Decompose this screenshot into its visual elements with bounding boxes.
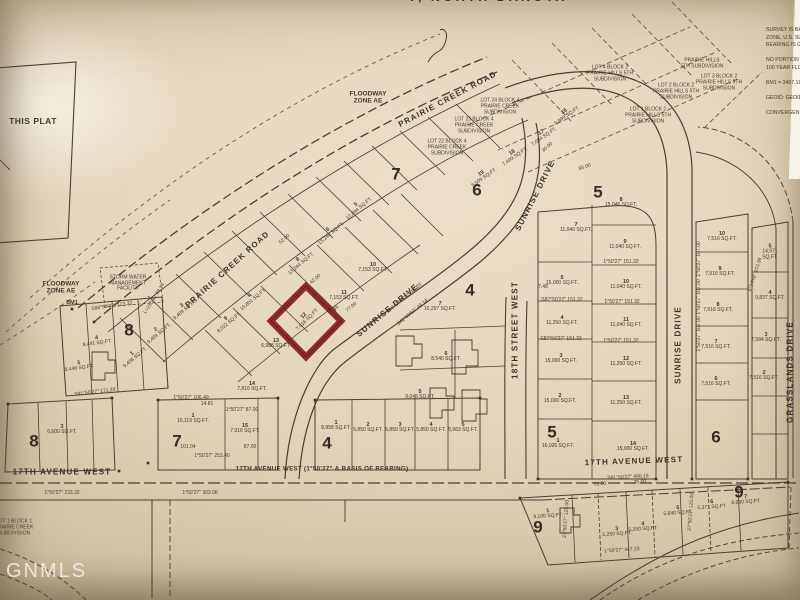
dimension-label: S87°50'27" 151.32 <box>540 337 581 343</box>
street-label: 18TH STREET WEST <box>512 281 521 379</box>
lot-label: 1211,250 SQ.FT. <box>610 356 642 368</box>
block-number: 4 <box>322 433 331 452</box>
lot-label: 1011,040 SQ.FT. <box>610 279 642 291</box>
lot-label: 55,963 SQ.FT. <box>448 422 477 434</box>
lot-label: 315,000 SQ.FT. <box>545 353 577 365</box>
dimension-label: 1°50'27" 233.32 <box>44 491 79 497</box>
adjacent-plat-label: LOT 22 BLOCK 4 PRAIRIE CREEK SUBDIVISION <box>427 139 466 156</box>
lot-label: 157,916 SQ.FT. <box>230 423 259 435</box>
dimension-label: 1°50'27" 87.00 <box>226 408 259 414</box>
lot-label: 35,850 SQ.FT. <box>385 422 414 434</box>
adjacent-plat-label: LOT 23 BLOCK 4 PRAIRIE CREEK SUBDIVISION <box>454 117 493 134</box>
lot-label: 25,850 SQ.FT. <box>353 422 382 434</box>
lot-label: 815,046 SQ.FT. <box>605 197 637 209</box>
adjacent-plat-label: PRAIRIE HILLS 5TH SUBDIVISION <box>680 58 723 70</box>
block-number: 8 <box>124 320 133 339</box>
dimension-label: 1°50'27" 303.06 <box>182 491 217 497</box>
lot-label: 1311,250 SQ.FT. <box>610 395 642 407</box>
this-plat-label: THIS PLAT <box>9 117 57 127</box>
lot-label: 37,584 SQ.FT. <box>751 332 780 344</box>
lot-label: 87,516 SQ.FT. <box>703 302 732 314</box>
dimension-label: 1°50'27" 253.40 <box>194 454 229 460</box>
lot-label: 107,516 SQ.FT. <box>707 231 736 243</box>
dimension-label: 1°50'27" 107.00 <box>697 316 703 351</box>
lot-label: 49,837 SQ.FT. <box>755 290 784 302</box>
dimension-label: 1°50'27" 151.32 <box>603 339 638 345</box>
road-17th-avenue <box>0 483 797 500</box>
lot-label: 1111,040 SQ.FT. <box>610 317 642 329</box>
lot-label: 67,516 SQ.FT. <box>701 376 730 388</box>
lot-label: 77,516 SQ.FT. <box>701 339 730 351</box>
zone-label: FLOODWAY ZONE AE <box>350 91 387 106</box>
lot-label: 711,040 SQ.FT. <box>560 222 592 234</box>
dimension-label: 14.81 <box>201 402 214 408</box>
vicinity-box <box>0 62 76 243</box>
dimension-label: 1°50'27" 151.32 <box>604 300 639 306</box>
dimension-label: 87.00 <box>244 445 257 451</box>
lot-label: 45,250 SQ.FT. <box>628 520 658 534</box>
plat-photo: Y, NORTH DAKOTA SURVEY IS BASE ZONE, U.S… <box>0 0 800 600</box>
plat-title-partial: Y, NORTH DAKOTA <box>408 0 567 4</box>
dimension-label: 75.00 <box>634 480 647 486</box>
block-number: 7 <box>391 164 400 183</box>
lot-label: 97,516 SQ.FT. <box>705 266 734 278</box>
dimension-label: 101.04 <box>180 445 195 451</box>
zone-label: FLOODWAY ZONE AE <box>43 281 80 296</box>
lot-label: 107,153 SQ.FT. <box>358 262 387 274</box>
street-label: 17TH AVENUE WEST (1°50'27" & BASIS OF BE… <box>236 467 409 474</box>
adjacent-plat-label: LOT 2 BLOCK 2 PRAIRIE HILLS 5TH SUBDIVIS… <box>653 83 699 100</box>
adjacent-plat-label: LOT 3 BLOCK 2 PRAIRIE HILLS 5TH SUBDIVIS… <box>696 74 742 91</box>
lot-label: 36,600 SQ.FT. <box>47 424 76 436</box>
dimension-label: 72.00 <box>594 482 607 488</box>
lot-label: 59,048 SQ.FT. <box>405 389 434 401</box>
block-outlines <box>5 205 788 598</box>
block-number: 4 <box>465 280 474 299</box>
footprint-shapes <box>92 336 580 533</box>
adjacent-plat-label: LOT 1 BLOCK 1 PRAIRIE CREEK SUBDIVISION <box>0 519 33 536</box>
survey-notes: SURVEY IS BASE ZONE, U.S. SUR BEARING IS… <box>766 27 800 117</box>
lot-label: 76,830 SQ.FT. <box>731 493 761 507</box>
lot-label: 1415,900 SQ.FT. <box>617 441 649 453</box>
lot-label: 215,000 SQ.FT. <box>544 393 576 405</box>
annotation-label: STORM WATER MANAGEMENT FACILITY <box>110 276 147 293</box>
lot-label: 515,000 SQ.FT. <box>546 275 578 287</box>
adjacent-plat-label: LOT 24 BLOCK 4 PRAIRIE CREEK SUBDIVISION <box>480 98 519 115</box>
dimension-label: S87°50'27" 151.32 <box>541 298 582 304</box>
street-label: 17TH AVENUE WEST <box>13 469 112 478</box>
lot-label: 911,040 SQ.FT. <box>609 239 641 251</box>
lot-label: 68,540 SQ.FT. <box>431 351 460 363</box>
lot-label: 411,250 SQ.FT. <box>546 315 578 327</box>
lot-label: 116,119 SQ.FT. <box>177 413 209 425</box>
dimension-label: 1°50'27" 107.00 <box>697 279 703 314</box>
dimension-label: 7.48 <box>538 285 548 291</box>
dimension-label: 1°50'27" 107.00 <box>697 241 703 276</box>
street-label: SUNRISE DRIVE <box>675 306 684 384</box>
block-number: 6 <box>711 427 720 446</box>
lot-label: 27,516 SQ.FT. <box>749 370 778 382</box>
benchmark-label: BM1 <box>66 300 78 306</box>
block-number: 5 <box>593 182 602 201</box>
gnmls-watermark: GNMLS <box>6 560 87 583</box>
lot-label: 65,371 SQ.FT. <box>697 498 727 512</box>
floodway-lines <box>0 34 440 345</box>
block-number: 8 <box>29 431 38 450</box>
street-label: GRASSLANDS DRIVE <box>787 321 796 423</box>
lot-label: 45,850 SQ.FT. <box>416 422 445 434</box>
lot-label: 136,988 SQ.FT. <box>261 338 290 350</box>
lot-label: 19,100 SQ.FT. <box>533 507 563 521</box>
lot-label: 116,026 SQ.FT. <box>542 438 574 450</box>
adjacent-plat-label: LOT 1 BLOCK 2 PRAIRIE HILLS 5TH SUBDIVIS… <box>625 107 671 124</box>
lot-label: 147,816 SQ.FT. <box>237 381 266 393</box>
dimension-label: 1°50'27" 151.32 <box>603 260 638 266</box>
lot-label: 18,958 SQ.FT. <box>321 420 350 432</box>
adjacent-plat-label: LOT 4 BLOCK 2 PRAIRIE HILLS 5TH SUBDIVIS… <box>587 65 633 82</box>
